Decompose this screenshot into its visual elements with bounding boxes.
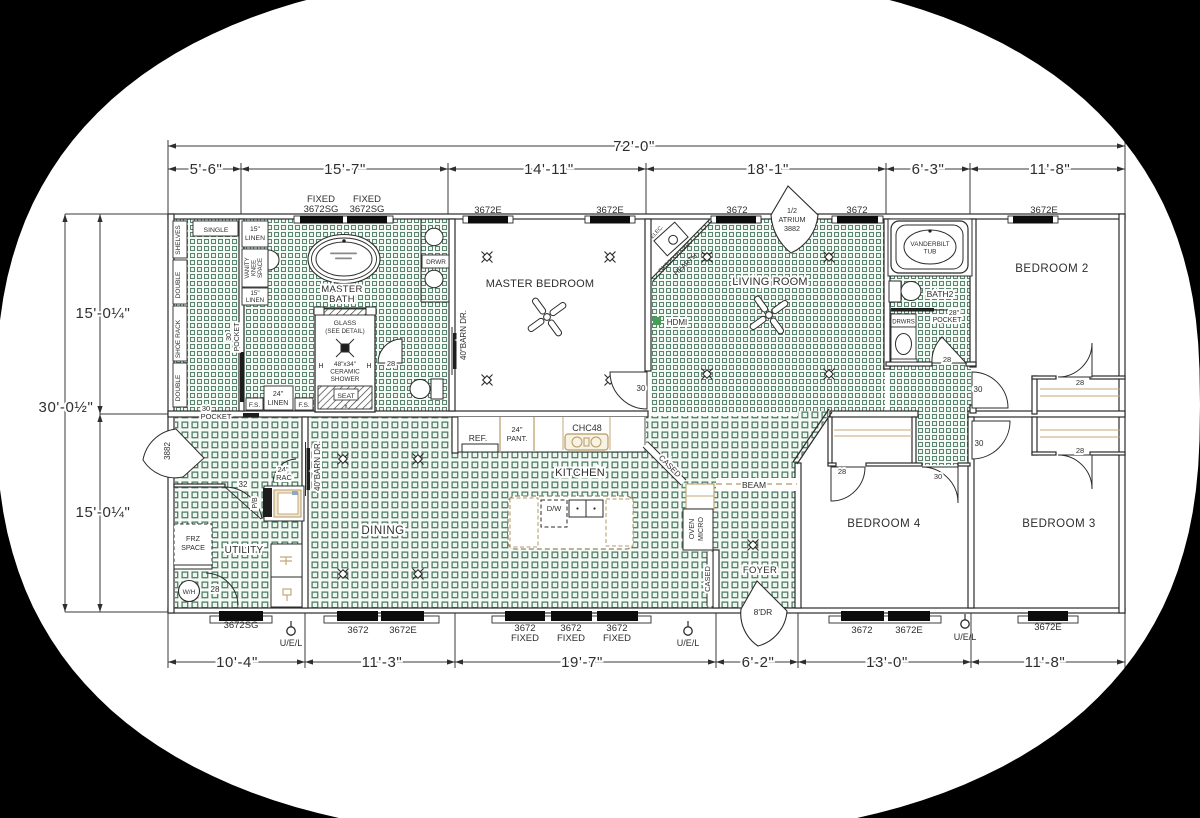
svg-text:VANITY: VANITY [245,257,251,278]
svg-text:28: 28 [838,467,846,476]
svg-text:28: 28 [1076,446,1084,455]
svg-text:KITCHEN: KITCHEN [555,467,605,479]
svg-text:FRZ: FRZ [186,534,201,543]
svg-text:P/B: P/B [252,497,259,509]
svg-text:REF.: REF. [469,433,487,443]
svg-text:10'-4": 10'-4" [216,654,258,671]
svg-text:3672SG: 3672SG [350,204,385,215]
svg-text:DOUBLE: DOUBLE [175,374,182,401]
svg-text:HDMI: HDMI [667,318,687,327]
svg-text:15'-7": 15'-7" [324,161,366,178]
svg-text:6'-2": 6'-2" [742,654,775,671]
svg-text:6'-3": 6'-3" [912,161,945,178]
svg-text:ATRIUM: ATRIUM [778,215,805,224]
svg-text:28": 28" [949,310,960,317]
svg-text:15": 15" [250,290,259,297]
svg-text:40"BARN DR.: 40"BARN DR. [313,441,322,491]
svg-text:15'-0¼": 15'-0¼" [76,305,131,322]
svg-text:30: 30 [975,439,984,448]
svg-text:30: 30 [637,384,646,393]
svg-text:x: x [345,404,348,410]
svg-text:SHOE RACK: SHOE RACK [175,319,182,358]
svg-text:VANDERBILT: VANDERBILT [910,241,949,248]
svg-text:F.S.: F.S. [249,402,261,409]
svg-text:40"BARN DR.: 40"BARN DR. [459,310,468,360]
svg-text:BEDROOM 4: BEDROOM 4 [847,518,921,530]
svg-text:SEAT: SEAT [337,393,354,400]
svg-text:DINING: DINING [361,525,404,537]
svg-text:5'-6": 5'-6" [190,161,223,178]
svg-text:3672: 3672 [851,625,872,636]
svg-text:TUB: TUB [924,249,937,256]
svg-text:H: H [366,363,371,370]
svg-text:11'-3": 11'-3" [362,654,403,671]
svg-text:LINEN: LINEN [245,235,265,242]
svg-text:MICRO: MICRO [696,517,705,541]
svg-text:3672E: 3672E [1030,205,1057,216]
svg-text:3882: 3882 [784,224,800,233]
svg-text:SHELVES: SHELVES [175,225,182,255]
svg-text:32: 32 [239,480,248,489]
svg-text:POCKET: POCKET [933,317,963,324]
svg-text:30: 30 [974,385,983,394]
svg-text:U/E/L: U/E/L [280,638,303,648]
svg-text:11'-8": 11'-8" [1030,161,1071,178]
svg-text:U/E/L: U/E/L [954,632,977,642]
svg-text:14'-11": 14'-11" [524,161,574,178]
svg-text:3672: 3672 [846,205,867,216]
svg-text:LINEN: LINEN [268,400,289,407]
svg-text:LIVING ROOM: LIVING ROOM [732,276,808,288]
svg-text:FIXED: FIXED [511,633,539,644]
svg-text:BEDROOM 2: BEDROOM 2 [1015,263,1089,275]
svg-text:3672E: 3672E [389,625,416,636]
svg-text:28: 28 [211,585,220,594]
svg-text:W/H: W/H [183,589,196,596]
svg-text:1/2: 1/2 [787,206,797,215]
svg-text:3672E: 3672E [1034,622,1061,633]
svg-text:CHC48: CHC48 [572,423,602,433]
svg-text:FOYER: FOYER [743,565,777,576]
svg-text:D/W: D/W [547,504,563,513]
svg-text:(SEE DETAIL): (SEE DETAIL) [325,328,364,335]
svg-text:SINGLE: SINGLE [204,227,229,234]
svg-text:3672E: 3672E [596,205,623,216]
svg-text:DRWRS: DRWRS [892,320,915,326]
svg-text:3672SG: 3672SG [224,620,259,631]
svg-text:15'-0¼": 15'-0¼" [76,504,131,521]
svg-text:SPACE: SPACE [258,258,264,278]
svg-text:24": 24" [273,391,284,398]
svg-text:LINEN: LINEN [246,297,264,304]
svg-text:28: 28 [387,359,395,368]
svg-text:H: H [318,363,323,370]
svg-text:OVEN: OVEN [687,519,696,539]
svg-text:3672E: 3672E [895,625,922,636]
svg-text:POCKET: POCKET [201,412,232,421]
svg-text:3672SG: 3672SG [304,204,339,215]
svg-text:POCKET: POCKET [234,322,241,352]
svg-text:48"x34": 48"x34" [334,361,356,368]
svg-text:8'DR: 8'DR [754,607,773,617]
svg-text:24": 24" [511,425,522,434]
svg-text:SHOWER: SHOWER [331,376,360,383]
svg-text:30'-0½": 30'-0½" [39,399,94,416]
svg-text:U/E/L: U/E/L [677,638,700,648]
svg-text:BEAM: BEAM [742,480,766,490]
svg-text:15": 15" [250,226,261,233]
svg-text:3672: 3672 [726,205,747,216]
svg-text:CERAMIC: CERAMIC [330,369,360,376]
svg-text:30: 30 [934,472,942,481]
svg-text:28: 28 [1076,378,1084,387]
svg-text:MASTER BEDROOM: MASTER BEDROOM [486,278,595,290]
svg-text:PANT.: PANT. [507,434,528,443]
svg-text:18'-1": 18'-1" [747,161,789,178]
svg-text:3672E: 3672E [474,205,501,216]
svg-text:RAC: RAC [276,473,292,482]
svg-text:72'-0": 72'-0" [613,138,655,155]
svg-text:11'-8": 11'-8" [1025,654,1066,671]
svg-text:GLASS: GLASS [334,320,357,327]
svg-text:13'-0": 13'-0" [866,654,908,671]
svg-text:BEDROOM 3: BEDROOM 3 [1022,518,1096,530]
svg-text:30: 30 [226,333,233,341]
svg-text:F.S.: F.S. [298,402,310,409]
svg-text:DRWR: DRWR [426,259,446,266]
svg-text:DOUBLE: DOUBLE [175,271,182,298]
svg-text:FIXED: FIXED [557,633,585,644]
svg-text:SPACE: SPACE [181,543,205,552]
svg-text:3882: 3882 [163,442,172,460]
svg-text:UTILITY: UTILITY [225,545,264,556]
svg-text:BATH: BATH [329,294,355,305]
svg-text:BATH2: BATH2 [927,289,954,299]
svg-text:CASED: CASED [703,565,712,591]
svg-text:3672: 3672 [347,625,368,636]
svg-text:FIXED: FIXED [603,633,631,644]
svg-text:28: 28 [943,355,951,364]
svg-text:KNEE: KNEE [252,260,258,276]
svg-text:19'-7": 19'-7" [561,654,603,671]
